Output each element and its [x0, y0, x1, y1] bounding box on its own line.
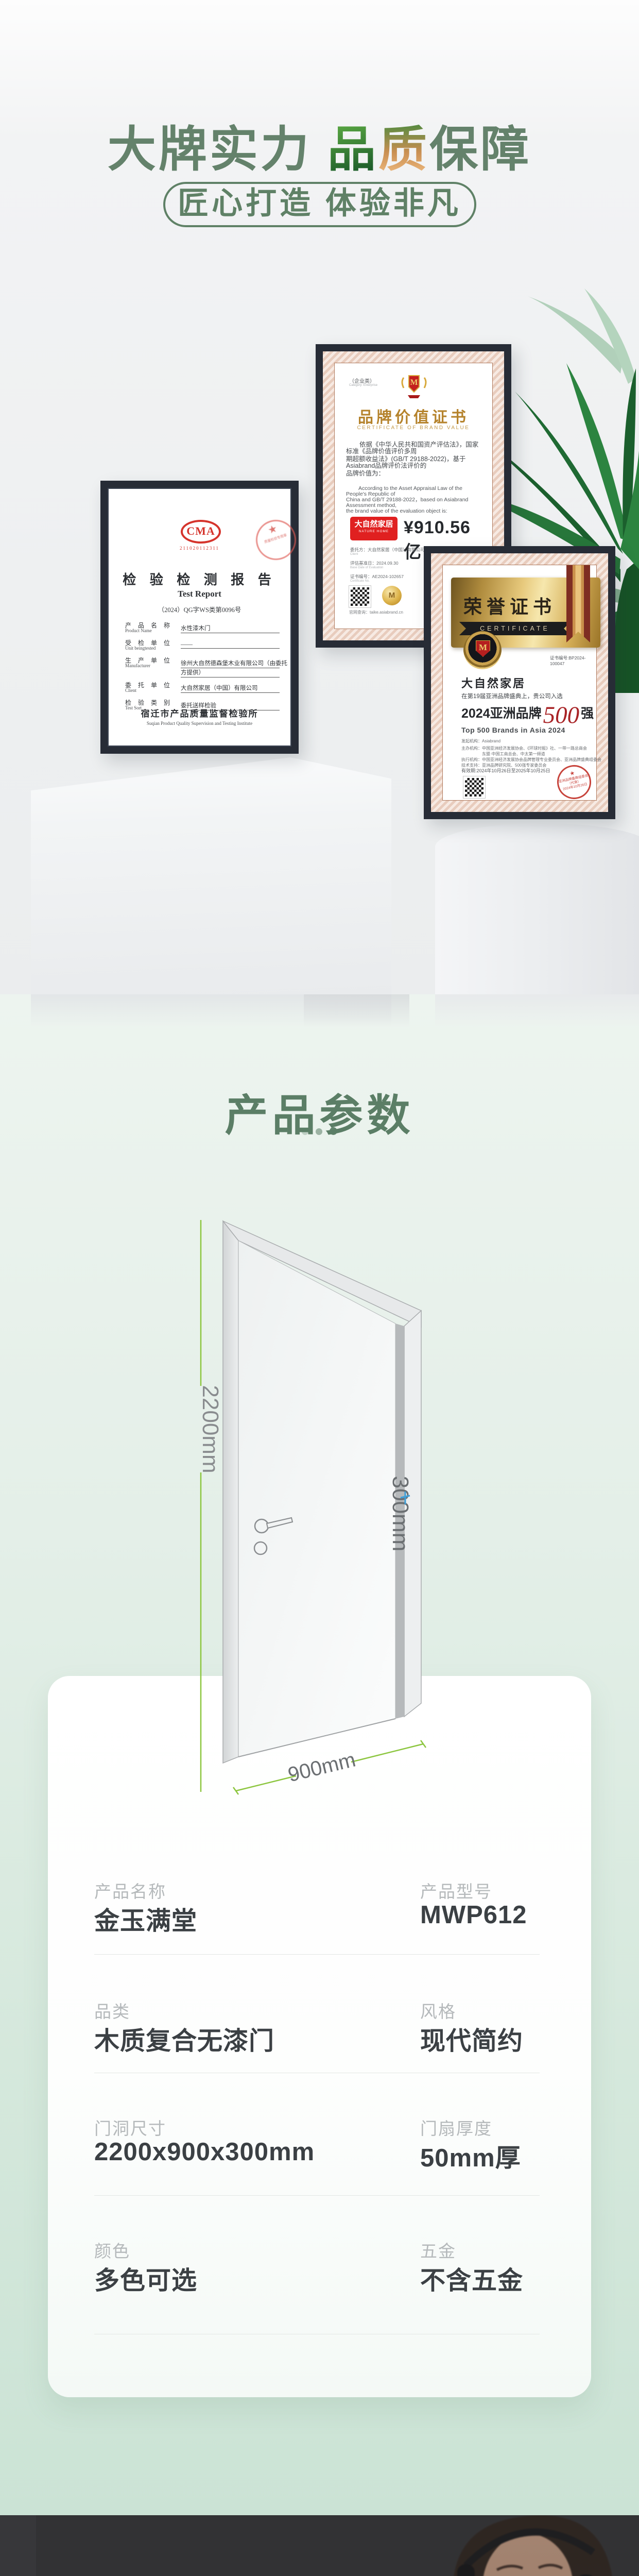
parameters-title-dots: [0, 1127, 639, 1138]
param-divider: [94, 2073, 540, 2073]
param-label: 门洞尺寸: [94, 2115, 166, 2140]
brand-value-cert-no: 证书编号：AE2024-102657: [350, 573, 404, 580]
brand-value-en-line3: the brand value of the evaluation object…: [346, 509, 481, 514]
honor-award: 2024亚洲品牌500强: [461, 701, 594, 724]
param-value: 多色可选: [94, 2260, 197, 2297]
row-label-en: Client: [125, 688, 136, 693]
cma-logo: CMA: [181, 520, 221, 544]
test-report-red-seal: ★ 质量检验专用章: [251, 515, 301, 565]
param-label: 产品型号: [420, 1878, 492, 1903]
hero-title-tail: 保障: [429, 122, 531, 176]
honor-brand: 大自然家居: [461, 674, 526, 691]
test-report-institute-en: Suqian Product Quality Supervision and T…: [108, 721, 291, 726]
pedestal-cylinder: [435, 823, 639, 994]
honor-red-seal: ★ 亚洲品牌盛典组委会 （代章） 2024年10月26日: [554, 762, 594, 802]
param-divider: [94, 2334, 540, 2334]
test-report-row-client: 委 托 单 位 Client 大自然家居（中国）有限公司: [125, 681, 280, 696]
door-width-label: 900mm: [286, 1748, 358, 1786]
brand-value-cn-line2: 期超额收益法》(GB/T 29188-2022)，基于Asiabrand品牌评价…: [346, 456, 481, 469]
honor-cert-no: 证书编号:BP2024-100047: [550, 655, 596, 666]
honor-ribbon-icon: [566, 565, 590, 642]
param-label: 颜色: [94, 2238, 130, 2262]
brand-value-category-en: Category: Enterprise: [349, 384, 377, 387]
brand-value-site: 官网查询：taike.asiabrand.cn: [349, 609, 403, 615]
honor-award-prefix: 2024亚洲品牌: [461, 706, 542, 721]
hero-title-accent-green: 品: [327, 122, 378, 176]
honor-validity: 有效期:2024年10月26日至2025年10月25日: [461, 767, 550, 774]
row-value: 水性漆木门: [181, 624, 280, 633]
param-value: 现代简约: [420, 2021, 523, 2057]
brand-value-title: 品牌价值证书: [335, 404, 492, 427]
row-value: ——: [181, 641, 280, 649]
honor-award-suffix: 强: [581, 706, 594, 721]
test-report-number: （2024）QG字WS类第0096号: [108, 604, 291, 614]
certificate-honor: 荣誉证书 CERTIFICATE M 证书编号:BP2024-100047 大自…: [424, 546, 615, 819]
door-dimension-diagram: 2200mm 300mm 900mm: [191, 1211, 438, 1798]
honor-intro: 在第19届亚洲品牌盛典上，贵公司入选: [461, 692, 563, 700]
brand-value-gold-seal: M: [382, 586, 402, 605]
honor-exec: 执行机构：中国亚洲经济发展协会品牌管理专业委员会、亚洲品牌盛典组委会: [461, 757, 601, 762]
door-height-label: 2200mm: [198, 1385, 223, 1473]
brand-value-cn-line3: 品牌价值为：: [346, 470, 481, 477]
brand-value-base-date-en: Base Date of Evaluation: [350, 566, 383, 569]
test-report-row-product: 产 品 名 称 Product Name 水性漆木门: [125, 621, 280, 636]
product-detail-page: 大牌实力 品质保障 匠心打造 体验非凡: [0, 0, 639, 2576]
param-label: 门扇厚度: [420, 2115, 492, 2140]
test-report-institute: 宿迁市产品质量监督检验所: [108, 706, 291, 719]
certificate-test-report: CMA 211020112311 ★ 质量检验专用章 检 验 检 测 报 告 T…: [100, 481, 299, 754]
test-report-title: 检 验 检 测 报 告: [108, 569, 291, 588]
param-value: 2200x900x300mm: [94, 2138, 315, 2166]
brand-value-en-line2: China and GB/T 29188-2022，based on Asiab…: [346, 497, 481, 508]
test-report-title-en: Test Report: [108, 589, 291, 599]
section-parameters: 产品参数 产品名称 金玉满堂 产品型号 MWP612 品类 木质复合无漆门 风格…: [0, 994, 639, 2515]
row-value: 徐州大自然德森堡木业有限公司（由委托: [181, 659, 280, 668]
nature-home-logo-en: NATURE HOME: [350, 530, 398, 533]
param-label: 产品名称: [94, 1878, 166, 1903]
brand-value-cert-no-en: Certificate No.: [350, 580, 370, 583]
pedestal-cube: [31, 757, 391, 994]
photo-dark-overlay: [0, 2515, 639, 2576]
test-report-row-manufacturer: 生 产 单 位 Manufacturer 徐州大自然德森堡木业有限公司（由委托 …: [125, 656, 280, 671]
brand-value-client: 委托方：大自然家居（中国）有限公司: [350, 547, 425, 553]
brand-value-client-en: Client: [350, 553, 358, 556]
svg-text:M: M: [410, 378, 418, 387]
brand-value-cn-line1: 依据《中华人民共和国资产评估法》，国家标准《品牌价值评价多周: [346, 442, 481, 454]
nature-home-logo: 大自然家居 NATURE HOME: [350, 517, 398, 540]
param-value: 50mm厚: [420, 2138, 521, 2174]
honor-medal-letter: M: [476, 640, 490, 657]
brand-value-en-line1: According to the Asset Appraisal Law of …: [346, 486, 481, 497]
param-value: 木质复合无漆门: [94, 2021, 274, 2057]
hero-title-accent-orange: 质: [378, 122, 429, 176]
row-label-en: Manufacturer: [125, 663, 150, 668]
test-report-row-unit: 受 检 单 位 Unit beingtested ——: [125, 638, 280, 654]
param-label: 风格: [420, 1998, 456, 2023]
honor-award-number: 500: [543, 702, 580, 728]
brand-value-qr-code: [349, 586, 371, 607]
honor-award-en: Top 500 Brands in Asia 2024: [461, 726, 565, 734]
honor-host2: 东盟·中国工商总会、中太第一频道: [482, 751, 545, 757]
honor-title: 荣誉证书: [463, 592, 556, 619]
section-certificates: 大牌实力 品质保障 匠心打造 体验非凡: [0, 0, 639, 994]
door-depth-label: 300mm: [388, 1476, 413, 1552]
honor-qr-code: [463, 776, 485, 798]
param-value: 不含五金: [420, 2260, 523, 2297]
row-value-line2: 方提供）: [181, 668, 280, 677]
honor-host1: 主办机构：中国亚洲经济发展协会、《环球时报》社、一带一路总商会: [461, 745, 587, 751]
honor-issuer: 发起机构：Asiabrand: [461, 738, 500, 744]
param-value: MWP612: [420, 1901, 527, 1929]
brand-value-base-date: 评估基准日：2024.09.30: [350, 560, 399, 566]
brand-value-crest-icon: M: [400, 372, 428, 401]
param-divider: [94, 1954, 540, 1955]
section-service: 金保姆服务 全国1000+实体门店支持 咨询下单 ›: [0, 2515, 639, 2576]
row-value: 大自然家居（中国）有限公司: [181, 684, 280, 693]
brand-value-title-en: CERTIFICATE OF BRAND VALUE: [335, 425, 492, 431]
row-label-en: Product Name: [125, 628, 152, 633]
pedestal-fade-right: [435, 994, 639, 1027]
hero-title: 大牌实力 品质保障: [0, 125, 639, 174]
param-label: 品类: [94, 1998, 130, 2023]
pedestal-fade-middle: [304, 994, 409, 1027]
row-label-en: Unit beingtested: [125, 646, 156, 651]
param-label: 五金: [420, 2238, 456, 2262]
param-value: 金玉满堂: [94, 1901, 197, 1937]
hero-title-lead: 大牌实力: [108, 122, 327, 176]
param-divider: [94, 2195, 540, 2196]
honor-medal-icon: M: [463, 631, 502, 669]
brand-value-category: （企业类）: [349, 377, 375, 384]
honor-paper: 荣誉证书 CERTIFICATE M 证书编号:BP2024-100047 大自…: [442, 565, 597, 801]
nature-home-logo-zh: 大自然家居: [350, 519, 398, 530]
hero-subtitle-pill: 匠心打造 体验非凡: [163, 182, 476, 227]
